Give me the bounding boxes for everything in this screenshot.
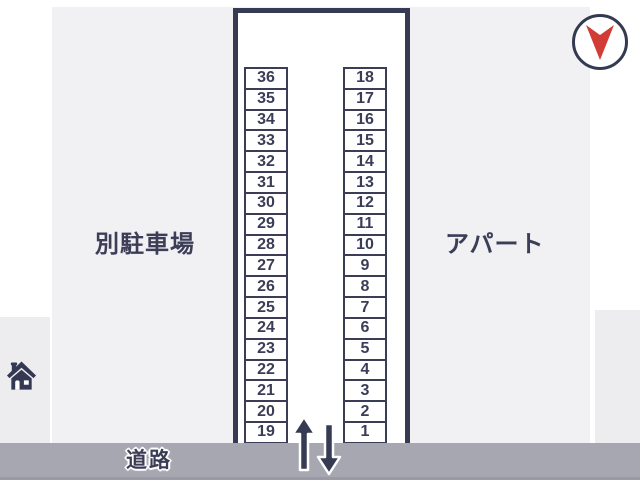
stall-33: 33 <box>244 129 288 152</box>
stall-column-right: 181716151413121110987654321 <box>343 67 387 444</box>
stall-34: 34 <box>244 109 288 132</box>
compass-icon <box>572 14 628 70</box>
right-lower-block <box>595 310 640 443</box>
stall-4: 4 <box>343 359 387 382</box>
road-label: 道路 <box>126 444 172 474</box>
stall-18: 18 <box>343 67 387 90</box>
stall-23: 23 <box>244 338 288 361</box>
stall-1: 1 <box>343 421 387 444</box>
home-icon-svg <box>6 359 37 393</box>
stall-12: 12 <box>343 192 387 215</box>
right-area-label: アパート <box>445 224 545 259</box>
parking-map: 別駐車場 アパート 363534333231302928272625242322… <box>0 0 640 480</box>
stall-30: 30 <box>244 192 288 215</box>
stall-17: 17 <box>343 88 387 111</box>
stall-25: 25 <box>244 296 288 319</box>
stall-14: 14 <box>343 150 387 173</box>
left-area-label: 別駐車場 <box>95 224 195 259</box>
stall-15: 15 <box>343 129 387 152</box>
stall-2: 2 <box>343 400 387 423</box>
stall-32: 32 <box>244 150 288 173</box>
stall-24: 24 <box>244 317 288 340</box>
stall-20: 20 <box>244 400 288 423</box>
stall-13: 13 <box>343 171 387 194</box>
entry-exit-arrows <box>285 413 347 478</box>
stall-10: 10 <box>343 234 387 257</box>
stall-28: 28 <box>244 234 288 257</box>
stall-9: 9 <box>343 254 387 277</box>
arrow-up-icon <box>293 417 315 470</box>
stall-26: 26 <box>244 275 288 298</box>
stall-7: 7 <box>343 296 387 319</box>
stall-27: 27 <box>244 254 288 277</box>
stall-3: 3 <box>343 379 387 402</box>
stall-21: 21 <box>244 379 288 402</box>
stall-16: 16 <box>343 109 387 132</box>
stall-6: 6 <box>343 317 387 340</box>
stall-column-left: 363534333231302928272625242322212019 <box>244 67 288 444</box>
stall-35: 35 <box>244 88 288 111</box>
stall-19: 19 <box>244 421 288 444</box>
stall-8: 8 <box>343 275 387 298</box>
home-icon <box>6 359 37 393</box>
arrow-down-icon <box>318 424 340 474</box>
stall-22: 22 <box>244 359 288 382</box>
stall-31: 31 <box>244 171 288 194</box>
stall-36: 36 <box>244 67 288 90</box>
compass-needle-icon <box>575 17 625 67</box>
stall-11: 11 <box>343 213 387 236</box>
stall-29: 29 <box>244 213 288 236</box>
stall-5: 5 <box>343 338 387 361</box>
arrows-svg <box>285 413 347 478</box>
